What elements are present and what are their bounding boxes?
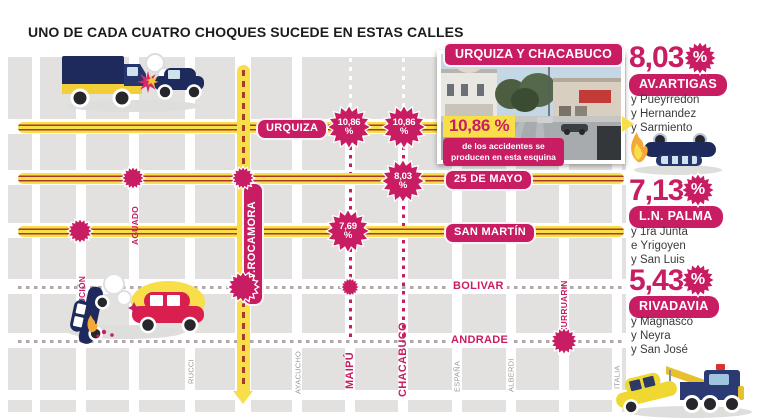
street-gutter — [8, 390, 626, 400]
percent-icon: % — [682, 40, 718, 76]
stat-cross-streets: y 1ra Junta e Yrigoyen y San Luis — [631, 225, 688, 267]
intersection-starburst — [120, 165, 146, 191]
intersection-starburst — [226, 270, 260, 304]
label-andrade: ANDRADE — [448, 334, 511, 346]
percent-starburst: 10,86% — [381, 104, 427, 150]
stat-cross-streets: y Magnasco y Neyra y San José — [631, 315, 693, 357]
street-arrow-icon — [233, 391, 253, 404]
label-aguado: AGUADO — [128, 198, 142, 253]
inset-caption: de los accidentes se producen en esta es… — [443, 138, 564, 166]
intersection-starburst — [230, 165, 256, 191]
inset-stat: 10,86 % — [443, 116, 515, 137]
label-bolivar: BOLIVAR — [450, 280, 507, 292]
percent-starburst: 10,86% — [326, 104, 372, 150]
intersection-starburst — [66, 217, 94, 245]
page-title: UNO DE CADA CUATRO CHOQUES SUCEDE EN EST… — [28, 24, 464, 40]
street-25demayo — [18, 173, 624, 184]
tow-truck-icon — [616, 352, 757, 420]
label-25demayo: 25 DE MAYO — [444, 169, 533, 191]
intersection-starburst — [549, 326, 579, 356]
street-arrow-icon — [622, 116, 634, 132]
truck-collision-illustration — [58, 50, 210, 116]
percent-icon: % — [680, 172, 716, 208]
label-rucci: RUCCI — [184, 357, 198, 387]
intersection-starburst — [339, 276, 361, 298]
label-ayacucho: AYACUCHO — [291, 350, 305, 395]
label-alberdi: ALBERDI — [504, 355, 518, 395]
percent-starburst: 8,03% — [380, 158, 426, 204]
label-espana: ESPAÑA — [450, 356, 464, 396]
label-urquiza: URQUIZA — [256, 118, 328, 140]
label-chacabuco: CHACABUCO — [396, 326, 410, 394]
inset-title: URQUIZA Y CHACABUCO — [443, 42, 624, 67]
car-crash-illustration — [56, 268, 216, 344]
label-maipu: MAIPÚ — [343, 348, 357, 394]
stat-value: 8,03 — [629, 43, 683, 73]
percent-starburst: 7,69% — [325, 208, 371, 254]
overturned-car-icon — [620, 126, 728, 176]
infographic: UNO DE CADA CUATRO CHOQUES SUCEDE EN EST… — [0, 0, 757, 420]
stat-value: 7,13 — [629, 176, 683, 206]
label-sanmartin: SAN MARTÍN — [444, 222, 536, 244]
percent-icon: % — [680, 262, 716, 298]
stat-value: 5,43 — [629, 266, 683, 296]
